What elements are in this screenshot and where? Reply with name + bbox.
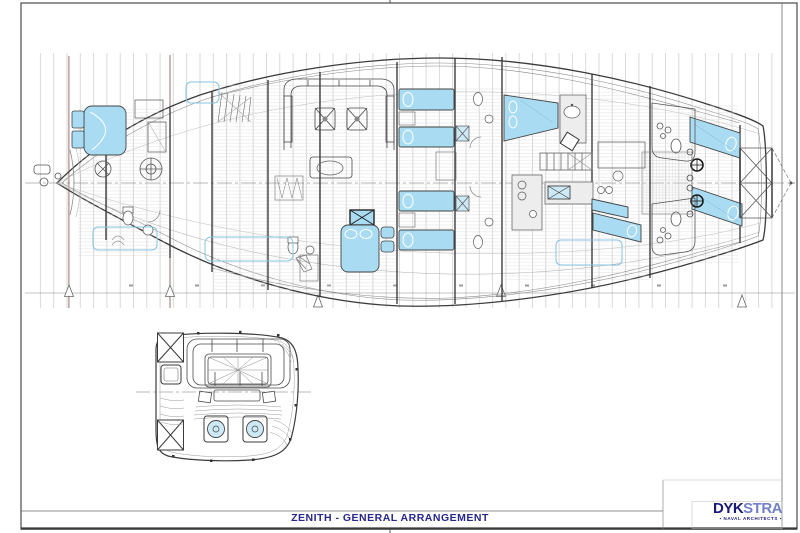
dykstra-logo: DYKSTRA ▪ NAVAL ARCHITECTS ▪ xyxy=(692,501,782,528)
logo-tagline: ▪ NAVAL ARCHITECTS ▪ xyxy=(692,517,782,522)
folding-table-sunburst xyxy=(208,357,268,384)
logo-text-primary: DYK xyxy=(713,500,743,517)
ga-drawing xyxy=(0,0,800,533)
drawing-title: ZENITH - GENERAL ARRANGEMENT xyxy=(0,512,780,524)
outline-fastener-dots xyxy=(172,331,298,462)
logo-wordmark: DYKSTRA xyxy=(692,501,782,516)
cockpit-detail-plan xyxy=(136,331,314,462)
logo-text-secondary: STRA xyxy=(743,500,782,517)
helm-console xyxy=(204,416,267,442)
drawing-sheet: ZENITH - GENERAL ARRANGEMENT DYKSTRA ▪ N… xyxy=(0,0,800,533)
